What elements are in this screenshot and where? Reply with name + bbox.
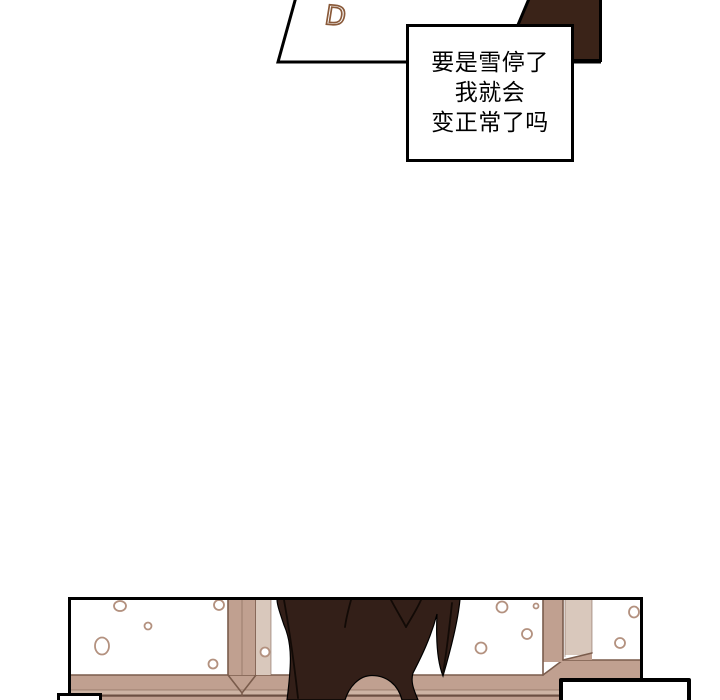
- comic-page: D 要是雪停了 我就会 变正常了吗: [0, 0, 720, 700]
- comic-artwork: [0, 0, 720, 700]
- speech-line: 我就会: [455, 78, 526, 108]
- speech-bubble: 要是雪停了 我就会 变正常了吗: [406, 24, 574, 162]
- speech-line: 变正常了吗: [431, 108, 549, 138]
- window-panel: [70, 599, 642, 700]
- speech-line: 要是雪停了: [431, 48, 549, 78]
- speech-bubble-partial-right: [559, 678, 691, 700]
- speech-bubble-partial-left: [57, 693, 102, 700]
